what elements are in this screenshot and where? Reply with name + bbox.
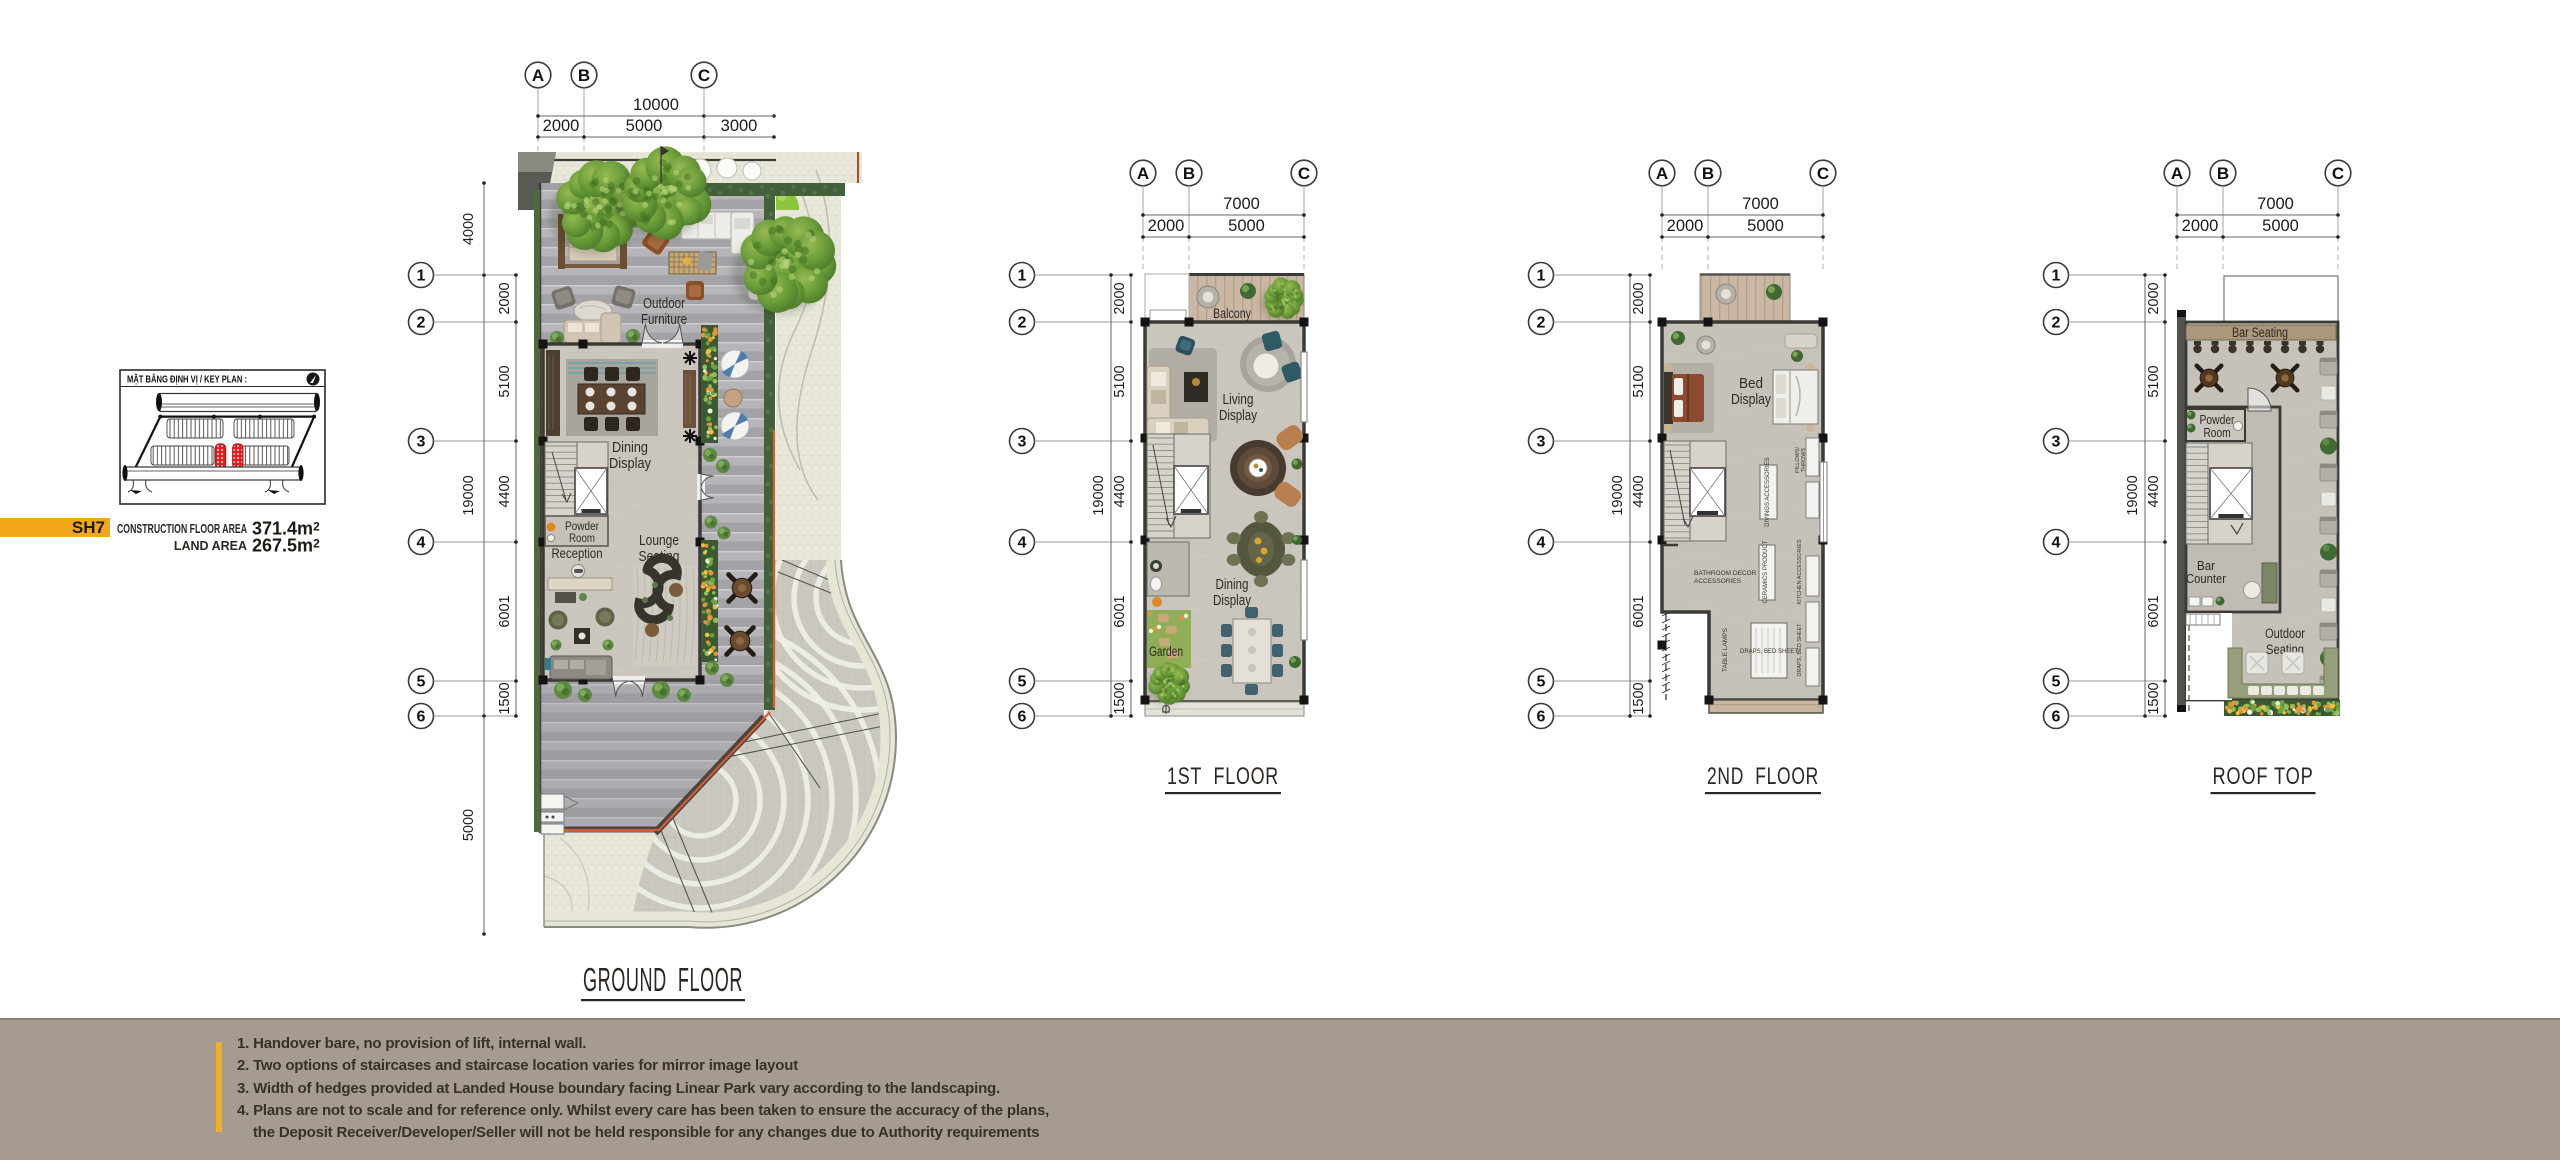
svg-text:19000: 19000 xyxy=(1610,475,1626,515)
svg-text:Bar: Bar xyxy=(2197,559,2215,573)
svg-text:267.5m2: 267.5m2 xyxy=(252,536,320,556)
svg-text:4: 4 xyxy=(1537,535,1546,552)
svg-text:Outdoor: Outdoor xyxy=(2265,626,2305,641)
svg-text:B: B xyxy=(1183,164,1195,183)
svg-text:1: 1 xyxy=(1537,268,1546,285)
svg-text:ROOF TOP: ROOF TOP xyxy=(2213,763,2314,790)
svg-text:CONSTRUCTION FLOOR AREA: CONSTRUCTION FLOOR AREA xyxy=(117,522,247,536)
svg-text:5000: 5000 xyxy=(2262,217,2299,235)
svg-text:19000: 19000 xyxy=(2125,475,2141,515)
svg-text:4400: 4400 xyxy=(1112,475,1128,507)
svg-text:Garden: Garden xyxy=(1149,644,1183,659)
svg-text:GROUND FLOOR: GROUND FLOOR xyxy=(583,961,743,998)
svg-text:1: 1 xyxy=(2052,268,2061,285)
svg-text:3: 3 xyxy=(2052,434,2061,451)
svg-text:2000: 2000 xyxy=(1631,282,1647,314)
svg-text:B: B xyxy=(2217,164,2229,183)
svg-text:Bed: Bed xyxy=(1739,375,1763,392)
svg-text:Display: Display xyxy=(609,455,651,472)
svg-text:5100: 5100 xyxy=(2146,365,2162,397)
svg-text:5: 5 xyxy=(2052,674,2061,691)
svg-text:4400: 4400 xyxy=(2146,475,2162,507)
svg-text:DIVINGS ACCESSORIES: DIVINGS ACCESSORIES xyxy=(1765,457,1771,526)
svg-text:6: 6 xyxy=(1537,709,1546,726)
svg-text:Bar Seating: Bar Seating xyxy=(2232,325,2288,340)
svg-text:1500: 1500 xyxy=(1631,682,1647,714)
svg-text:CERAMICS PRODUCT: CERAMICS PRODUCT xyxy=(1763,540,1769,603)
svg-text:2000: 2000 xyxy=(2146,282,2162,314)
svg-text:1: 1 xyxy=(1018,268,1027,285)
svg-text:1500: 1500 xyxy=(1112,682,1128,714)
svg-text:1500: 1500 xyxy=(2146,682,2162,714)
svg-text:6: 6 xyxy=(2052,709,2061,726)
svg-text:2000: 2000 xyxy=(1112,282,1128,314)
svg-text:Living: Living xyxy=(1223,391,1254,408)
svg-text:Powder: Powder xyxy=(565,521,599,533)
svg-text:2000: 2000 xyxy=(2182,217,2219,235)
svg-text:2ND FLOOR: 2ND FLOOR xyxy=(1707,763,1819,790)
svg-text:7000: 7000 xyxy=(2257,195,2294,213)
svg-text:2000: 2000 xyxy=(543,117,580,135)
svg-text:BATHROOM DECOR: BATHROOM DECOR xyxy=(1694,570,1757,577)
svg-text:C: C xyxy=(1817,164,1829,183)
svg-text:6001: 6001 xyxy=(1631,595,1647,627)
svg-text:19000: 19000 xyxy=(1091,475,1107,515)
svg-text:4000: 4000 xyxy=(461,213,477,245)
svg-text:3: 3 xyxy=(1018,434,1027,451)
svg-text:Room: Room xyxy=(2204,426,2231,440)
svg-text:2: 2 xyxy=(1018,315,1027,332)
svg-text:KITCHEN ACCESSORIES: KITCHEN ACCESSORIES xyxy=(1797,539,1803,604)
svg-text:5: 5 xyxy=(417,674,426,691)
svg-text:Display: Display xyxy=(1731,391,1771,408)
svg-text:A: A xyxy=(532,66,544,85)
svg-text:Balcony: Balcony xyxy=(1213,306,1251,321)
svg-text:5000: 5000 xyxy=(1747,217,1784,235)
svg-text:1500: 1500 xyxy=(497,682,513,714)
svg-text:B: B xyxy=(1702,164,1714,183)
svg-text:5100: 5100 xyxy=(1112,365,1128,397)
svg-text:B: B xyxy=(578,66,590,85)
svg-text:1: 1 xyxy=(417,268,426,285)
svg-text:Outdoor: Outdoor xyxy=(643,295,685,312)
svg-text:A: A xyxy=(1656,164,1668,183)
svg-text:MẶT BẰNG ĐỊNH VỊ / KEY PLAN :: MẶT BẰNG ĐỊNH VỊ / KEY PLAN : xyxy=(127,373,247,386)
svg-text:3: 3 xyxy=(1537,434,1546,451)
svg-text:4400: 4400 xyxy=(1631,475,1647,507)
svg-text:2: 2 xyxy=(1537,315,1546,332)
svg-text:Lounge: Lounge xyxy=(639,532,679,549)
svg-text:Display: Display xyxy=(1219,407,1257,424)
svg-text:4: 4 xyxy=(2052,535,2061,552)
svg-text:5000: 5000 xyxy=(461,809,477,841)
svg-text:A: A xyxy=(2171,164,2183,183)
svg-text:Dining: Dining xyxy=(612,439,648,456)
svg-text:A: A xyxy=(1137,164,1149,183)
svg-text:5: 5 xyxy=(1537,674,1546,691)
svg-text:7000: 7000 xyxy=(1742,195,1779,213)
svg-text:Display: Display xyxy=(1213,592,1251,609)
svg-text:6: 6 xyxy=(1018,709,1027,726)
svg-text:6001: 6001 xyxy=(497,595,513,627)
svg-text:DRAPS, BED SHEET: DRAPS, BED SHEET xyxy=(1797,623,1803,677)
svg-text:5100: 5100 xyxy=(1631,365,1647,397)
svg-text:10000: 10000 xyxy=(633,96,679,114)
svg-text:5: 5 xyxy=(1018,674,1027,691)
svg-text:4: 4 xyxy=(417,535,426,552)
svg-text:C: C xyxy=(698,66,710,85)
svg-text:5100: 5100 xyxy=(497,365,513,397)
svg-text:C: C xyxy=(1298,164,1310,183)
svg-text:2000: 2000 xyxy=(1148,217,1185,235)
svg-text:2000: 2000 xyxy=(1667,217,1704,235)
svg-text:6001: 6001 xyxy=(2146,595,2162,627)
svg-text:6001: 6001 xyxy=(1112,595,1128,627)
svg-text:Powder: Powder xyxy=(2200,413,2235,427)
svg-text:2: 2 xyxy=(2052,315,2061,332)
svg-text:THROWS: THROWS xyxy=(1801,447,1807,472)
svg-text:Reception: Reception xyxy=(552,545,603,561)
svg-text:6: 6 xyxy=(417,709,426,726)
svg-text:Room: Room xyxy=(569,533,595,545)
svg-text:ACCESSORIES: ACCESSORIES xyxy=(1694,578,1742,585)
svg-text:19000: 19000 xyxy=(461,475,477,515)
svg-text:TABLE LAMPS: TABLE LAMPS xyxy=(1722,627,1729,672)
svg-text:3000: 3000 xyxy=(721,117,758,135)
svg-text:1ST FLOOR: 1ST FLOOR xyxy=(1167,763,1279,790)
svg-text:LAND AREA: LAND AREA xyxy=(174,539,247,553)
svg-text:DRAPS, BED SHEET: DRAPS, BED SHEET xyxy=(1740,649,1798,655)
svg-text:Counter: Counter xyxy=(2186,572,2226,586)
svg-text:2000: 2000 xyxy=(497,282,513,314)
svg-text:4400: 4400 xyxy=(497,475,513,507)
svg-text:4: 4 xyxy=(1018,535,1027,552)
svg-text:C: C xyxy=(2332,164,2344,183)
svg-text:7000: 7000 xyxy=(1223,195,1260,213)
svg-text:SH7: SH7 xyxy=(72,518,105,537)
svg-text:2: 2 xyxy=(417,315,426,332)
svg-text:5000: 5000 xyxy=(626,117,663,135)
svg-text:3: 3 xyxy=(417,434,426,451)
svg-text:5000: 5000 xyxy=(1228,217,1265,235)
svg-text:Dining: Dining xyxy=(1216,576,1249,593)
